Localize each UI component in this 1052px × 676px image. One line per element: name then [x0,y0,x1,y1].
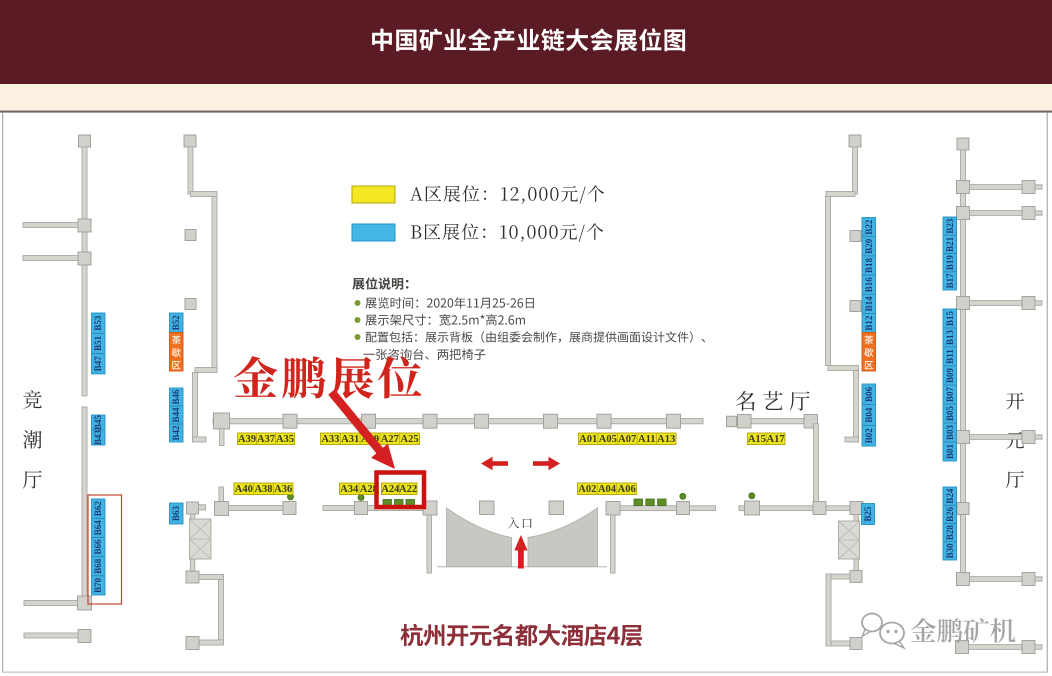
svg-text:B13: B13 [945,330,955,346]
svg-text:B06: B06 [864,386,874,402]
svg-text:B53: B53 [93,315,103,331]
svg-text:B15: B15 [945,311,955,327]
svg-text:A06: A06 [618,484,636,495]
svg-text:B09: B09 [945,368,955,384]
svg-text:B70: B70 [93,577,103,593]
svg-text:A31: A31 [341,434,359,445]
svg-text:B43: B43 [93,430,103,446]
svg-text:A40: A40 [235,484,253,495]
svg-text:B16: B16 [864,277,874,293]
svg-text:B30: B30 [945,543,955,559]
svg-text:B47: B47 [93,356,103,372]
svg-text:B68: B68 [93,558,103,574]
svg-text:B52: B52 [171,315,181,331]
svg-text:A33: A33 [321,434,339,445]
svg-text:A34: A34 [340,484,359,495]
svg-text:B17: B17 [945,273,955,289]
svg-text:A27: A27 [381,434,399,445]
svg-text:A39: A39 [238,434,256,445]
svg-text:B02: B02 [864,428,874,444]
svg-text:B03: B03 [945,425,955,441]
svg-text:A24: A24 [381,484,400,495]
svg-text:A38: A38 [254,484,272,495]
svg-text:A15: A15 [748,434,766,445]
svg-text:B28: B28 [945,525,955,541]
svg-text:B05: B05 [945,406,955,422]
svg-text:B01: B01 [945,444,955,460]
svg-text:A25: A25 [401,434,419,445]
svg-text:B42: B42 [171,425,181,441]
svg-text:B21: B21 [945,236,955,252]
svg-text:B25: B25 [863,506,873,522]
svg-text:A04: A04 [598,484,617,495]
svg-text:B20: B20 [864,238,874,254]
svg-text:B45: B45 [93,415,103,431]
svg-text:B22: B22 [864,219,874,235]
svg-text:A05: A05 [599,434,617,445]
svg-text:A13: A13 [657,434,675,445]
svg-text:B19: B19 [945,255,955,271]
svg-text:B26: B26 [945,506,955,522]
svg-text:B12: B12 [864,315,874,331]
svg-text:A36: A36 [274,484,292,495]
svg-text:B07: B07 [945,387,955,403]
svg-text:B14: B14 [864,296,874,312]
svg-text:A02: A02 [578,484,596,495]
svg-text:A07: A07 [618,434,636,445]
svg-text:B51: B51 [93,335,103,351]
svg-text:A35: A35 [276,434,294,445]
svg-text:B62: B62 [93,501,103,517]
svg-text:A37: A37 [257,434,275,445]
svg-text:B66: B66 [93,539,103,555]
svg-text:B23: B23 [945,218,955,234]
svg-text:B24: B24 [945,488,955,504]
svg-text:B64: B64 [93,520,103,536]
svg-text:A01: A01 [579,434,597,445]
svg-text:B04: B04 [864,407,874,423]
svg-text:B44: B44 [171,407,181,423]
svg-text:B46: B46 [171,389,181,405]
svg-text:B11: B11 [945,349,955,364]
svg-text:A17: A17 [767,434,785,445]
svg-text:B63: B63 [171,506,181,522]
svg-text:B18: B18 [864,258,874,274]
svg-text:A22: A22 [399,484,417,495]
svg-text:A11: A11 [638,434,656,445]
